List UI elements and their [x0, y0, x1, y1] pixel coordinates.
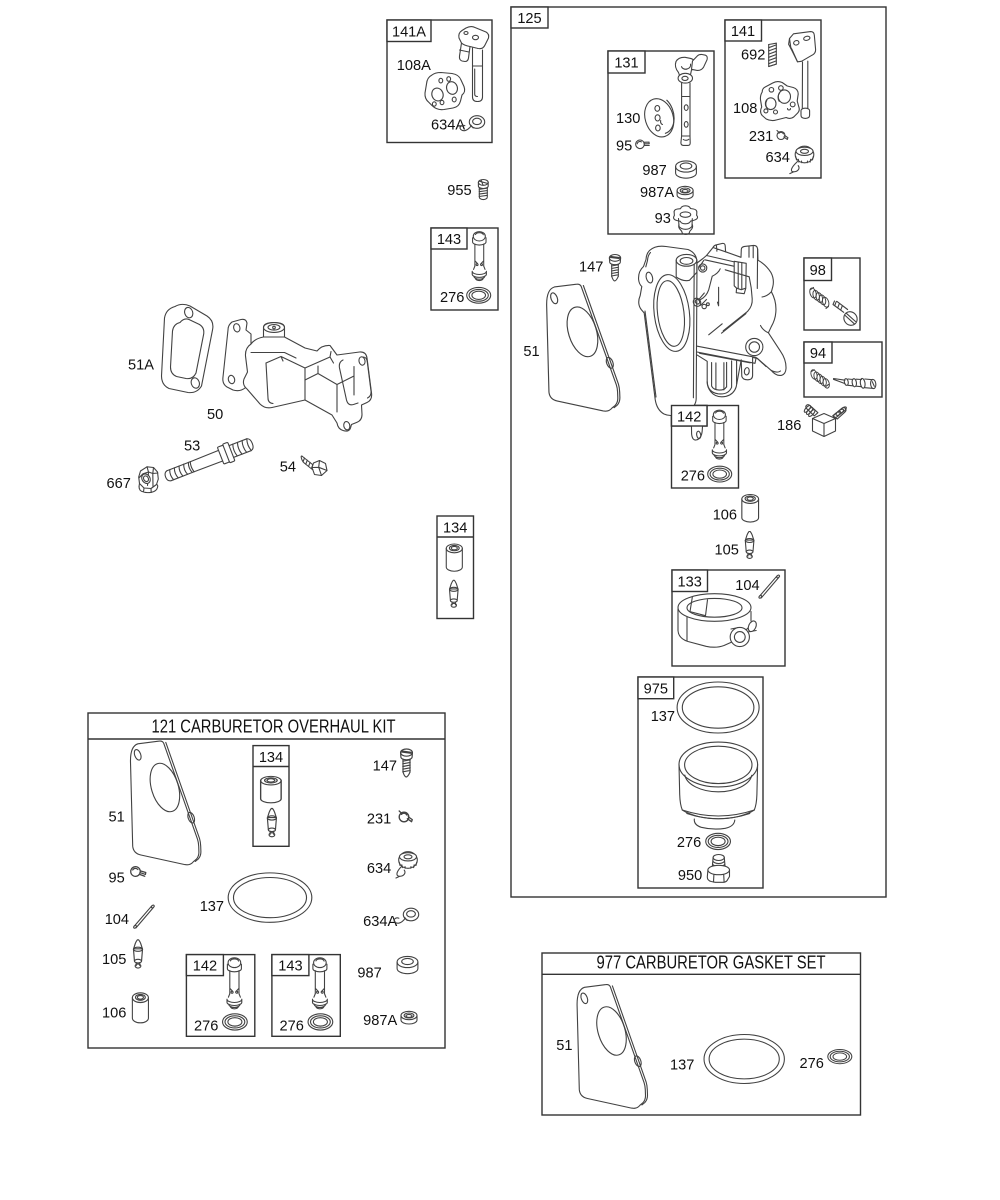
svg-text:94: 94 [810, 346, 826, 362]
svg-text:141: 141 [731, 24, 755, 40]
svg-text:276: 276 [194, 1019, 218, 1035]
svg-text:51A: 51A [128, 358, 154, 374]
svg-text:98: 98 [810, 263, 826, 279]
svg-text:106: 106 [102, 1005, 126, 1021]
svg-text:54: 54 [280, 460, 296, 476]
svg-text:137: 137 [651, 709, 675, 725]
svg-text:276: 276 [280, 1019, 304, 1035]
svg-text:104: 104 [105, 912, 129, 928]
svg-text:977 CARBURETOR GASKET SET: 977 CARBURETOR GASKET SET [597, 953, 826, 973]
svg-text:634A: 634A [363, 914, 397, 930]
svg-text:50: 50 [207, 407, 223, 423]
svg-text:975: 975 [644, 682, 668, 698]
svg-text:142: 142 [193, 959, 217, 975]
svg-text:147: 147 [373, 758, 397, 774]
svg-text:276: 276 [677, 835, 701, 851]
svg-text:141A: 141A [392, 25, 426, 41]
svg-text:276: 276 [681, 469, 705, 485]
svg-text:134: 134 [443, 521, 467, 537]
svg-text:105: 105 [715, 543, 739, 559]
svg-text:955: 955 [447, 183, 471, 199]
svg-text:186: 186 [777, 418, 801, 434]
svg-text:125: 125 [517, 11, 541, 27]
svg-text:143: 143 [437, 232, 461, 248]
svg-text:134: 134 [259, 750, 283, 766]
svg-text:634: 634 [367, 861, 391, 877]
svg-text:950: 950 [678, 868, 702, 884]
svg-text:987A: 987A [363, 1013, 397, 1029]
svg-text:137: 137 [200, 899, 224, 915]
svg-text:95: 95 [109, 870, 125, 886]
svg-text:51: 51 [109, 810, 125, 826]
svg-text:987: 987 [642, 163, 666, 179]
svg-text:276: 276 [440, 290, 464, 306]
svg-text:142: 142 [677, 410, 701, 426]
svg-text:53: 53 [184, 439, 200, 455]
svg-text:137: 137 [670, 1058, 694, 1074]
svg-text:634: 634 [766, 150, 790, 166]
svg-text:108A: 108A [397, 58, 431, 74]
svg-text:634A: 634A [431, 118, 465, 134]
svg-text:987A: 987A [640, 185, 674, 201]
svg-text:692: 692 [741, 48, 765, 64]
svg-text:121 CARBURETOR OVERHAUL KIT: 121 CARBURETOR OVERHAUL KIT [152, 717, 396, 737]
svg-text:104: 104 [735, 578, 759, 594]
svg-text:147: 147 [579, 260, 603, 276]
svg-text:987: 987 [357, 965, 381, 981]
svg-text:51: 51 [523, 344, 539, 360]
svg-text:105: 105 [102, 952, 126, 968]
svg-text:667: 667 [107, 476, 131, 492]
svg-text:143: 143 [278, 959, 302, 975]
svg-text:130: 130 [616, 111, 640, 127]
svg-text:108: 108 [733, 101, 757, 117]
svg-text:276: 276 [800, 1056, 824, 1072]
svg-text:133: 133 [678, 575, 702, 591]
svg-text:106: 106 [713, 508, 737, 524]
svg-text:51: 51 [556, 1038, 572, 1054]
svg-text:93: 93 [655, 211, 671, 227]
svg-text:231: 231 [367, 812, 391, 828]
svg-text:231: 231 [749, 129, 773, 145]
svg-text:131: 131 [614, 56, 638, 72]
svg-text:95: 95 [616, 139, 632, 155]
